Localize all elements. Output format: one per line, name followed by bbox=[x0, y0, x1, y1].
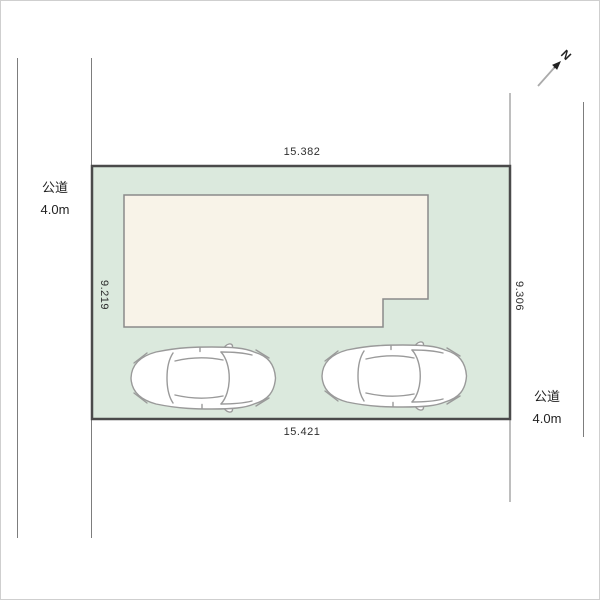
road-label-right: 公道 4.0m bbox=[522, 389, 572, 427]
car-top-view-icon bbox=[322, 342, 467, 410]
dim-label-left: 9.219 bbox=[97, 245, 111, 345]
road-left-width: 4.0m bbox=[30, 202, 80, 218]
road-right-width: 4.0m bbox=[522, 411, 572, 427]
road-left-name: 公道 bbox=[30, 180, 80, 196]
road-label-left: 公道 4.0m bbox=[30, 180, 80, 218]
building-footprint bbox=[124, 195, 428, 327]
dim-label-top: 15.382 bbox=[232, 145, 372, 159]
site-plan-drawing bbox=[0, 0, 600, 600]
dim-label-bottom: 15.421 bbox=[232, 425, 372, 439]
dim-label-right: 9.306 bbox=[512, 246, 526, 346]
car-top-view-icon bbox=[131, 344, 276, 412]
site-plan: N 15.382 15.421 9.219 9.306 公道 4.0m 公道 4… bbox=[0, 0, 600, 600]
north-arrow-icon bbox=[538, 61, 561, 86]
road-right-name: 公道 bbox=[522, 389, 572, 405]
